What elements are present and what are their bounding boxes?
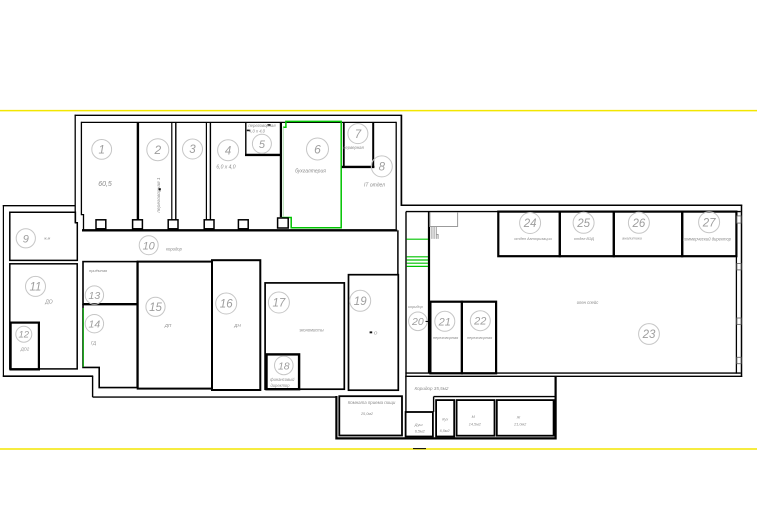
svg-text:коридор: коридор — [408, 305, 422, 309]
svg-text:16: 16 — [220, 299, 233, 311]
svg-text:15: 15 — [149, 302, 162, 314]
svg-text:19: 19 — [354, 296, 367, 308]
svg-text:60,5: 60,5 — [98, 181, 112, 188]
svg-text:17: 17 — [273, 298, 286, 310]
svg-text:отдел ВЭД: отдел ВЭД — [574, 237, 595, 241]
svg-text:9: 9 — [23, 233, 29, 245]
svg-text:ДО2: ДО2 — [20, 347, 30, 352]
svg-text:серверная: серверная — [343, 145, 364, 150]
svg-text:8: 8 — [379, 162, 386, 174]
svg-text:18: 18 — [278, 360, 290, 372]
svg-text:опен спейс: опен спейс — [577, 300, 599, 305]
svg-text:21: 21 — [438, 316, 451, 328]
svg-text:24: 24 — [523, 218, 537, 230]
svg-text:27: 27 — [702, 217, 716, 229]
svg-text:ж.м: ж.м — [43, 237, 51, 241]
svg-text:финансовый: финансовый — [270, 377, 295, 382]
svg-text:6,5м2: 6,5м2 — [415, 430, 426, 434]
svg-text:переговорная: переговорная — [248, 123, 276, 128]
svg-text:12: 12 — [19, 330, 30, 341]
svg-text:11: 11 — [30, 282, 42, 294]
svg-text:6: 6 — [314, 142, 321, 156]
svg-text:Комната приема пищи: Комната приема пищи — [348, 400, 396, 405]
svg-text:экономисты: экономисты — [299, 328, 323, 333]
svg-text:21,0м2: 21,0м2 — [513, 423, 527, 427]
svg-text:отдел Авторизации: отдел Авторизации — [514, 236, 552, 241]
svg-text:25: 25 — [576, 218, 590, 230]
svg-text:4,0 х 4,0: 4,0 х 4,0 — [249, 128, 266, 133]
svg-text:4: 4 — [225, 145, 231, 157]
svg-text:3: 3 — [189, 144, 196, 156]
svg-text:6,0 х 4,0: 6,0 х 4,0 — [216, 165, 235, 171]
svg-text:25,0м2: 25,0м2 — [360, 412, 374, 416]
svg-text:5: 5 — [259, 139, 266, 151]
svg-text:переговорная: переговорная — [467, 335, 492, 340]
svg-text:22: 22 — [473, 316, 486, 328]
svg-text:1: 1 — [98, 145, 104, 157]
svg-text:Душ: Душ — [414, 423, 424, 427]
svg-text:20: 20 — [411, 316, 424, 328]
svg-text:ДО: ДО — [44, 300, 53, 306]
svg-text:Ж: Ж — [516, 415, 521, 419]
svg-text:14,5м2: 14,5м2 — [469, 423, 482, 427]
svg-text:Коридор 35,5м2: Коридор 35,5м2 — [415, 386, 449, 391]
svg-text:коридор: коридор — [166, 246, 183, 251]
svg-text:бухгалтерия: бухгалтерия — [295, 169, 326, 175]
svg-text:директор: директор — [271, 383, 291, 388]
svg-text:ГД: ГД — [91, 341, 97, 346]
svg-text:26: 26 — [632, 218, 646, 230]
svg-text:ДП: ДП — [164, 323, 172, 328]
svg-text:10: 10 — [143, 240, 156, 252]
svg-text:7: 7 — [355, 129, 362, 141]
svg-text:приёмная: приёмная — [89, 268, 108, 273]
svg-text:коммерческий директор: коммерческий директор — [683, 237, 732, 242]
svg-text:аналитики: аналитики — [622, 237, 643, 241]
svg-text:13: 13 — [89, 290, 101, 302]
svg-text:переговорная 1: переговорная 1 — [156, 177, 162, 213]
svg-text:О: О — [374, 330, 378, 335]
svg-text:14: 14 — [89, 319, 101, 331]
svg-text:2: 2 — [153, 143, 161, 157]
svg-text:IT отдел: IT отдел — [364, 183, 385, 189]
svg-text:ДН: ДН — [233, 323, 241, 328]
svg-text:переговорная: переговорная — [433, 335, 458, 340]
svg-text:6,5м2: 6,5м2 — [440, 429, 451, 433]
svg-text:23: 23 — [642, 329, 656, 341]
